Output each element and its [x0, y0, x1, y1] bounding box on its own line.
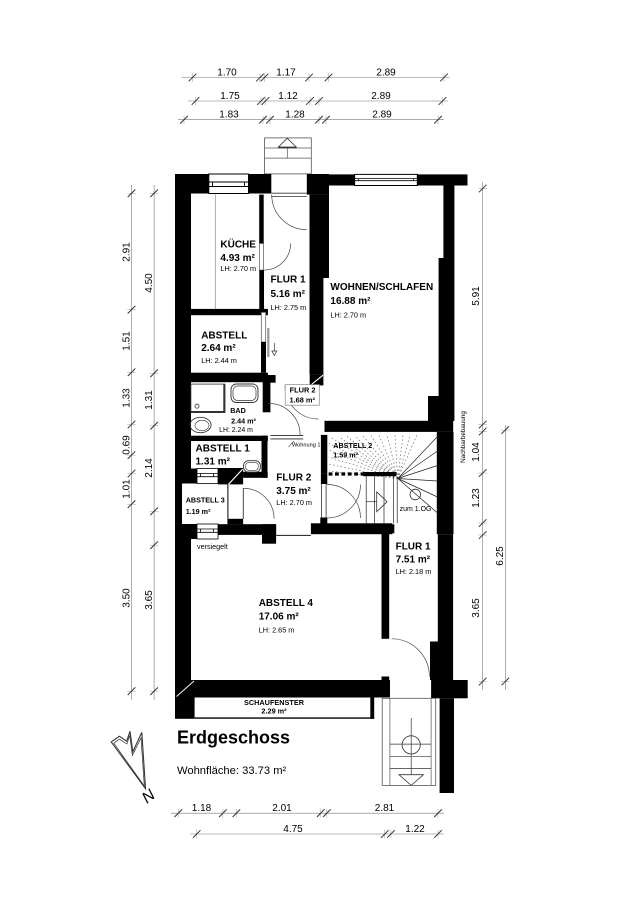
svg-text:5.16 m²: 5.16 m² [271, 289, 306, 300]
svg-text:3.50: 3.50 [122, 588, 133, 608]
svg-text:2.29 m²: 2.29 m² [261, 707, 287, 716]
svg-text:SCHAUFENSTER: SCHAUFENSTER [244, 698, 305, 707]
svg-text:1.33: 1.33 [122, 388, 133, 408]
svg-text:Wohnfläche: 33.73 m²: Wohnfläche: 33.73 m² [177, 765, 287, 777]
svg-text:1.28: 1.28 [285, 110, 305, 121]
svg-text:Erdgeschoss: Erdgeschoss [177, 728, 290, 748]
svg-text:4.93 m²: 4.93 m² [220, 253, 255, 264]
svg-text:ABSTELL 2: ABSTELL 2 [333, 441, 372, 450]
svg-text:6.25: 6.25 [495, 546, 506, 566]
svg-text:1.31: 1.31 [144, 390, 155, 410]
svg-text:FLUR 2: FLUR 2 [276, 472, 311, 483]
svg-text:zum 1.OG: zum 1.OG [400, 506, 432, 513]
svg-text:1.22: 1.22 [405, 824, 425, 835]
svg-text:2.44 m²: 2.44 m² [231, 417, 256, 426]
svg-text:WOHNEN/SCHLAFEN: WOHNEN/SCHLAFEN [330, 282, 433, 293]
svg-text:2.89: 2.89 [371, 91, 391, 102]
svg-text:2.14: 2.14 [144, 458, 155, 478]
svg-text:Wohnung 1: Wohnung 1 [292, 442, 321, 448]
svg-text:FLUR 1: FLUR 1 [271, 274, 306, 285]
svg-text:FLUR 1: FLUR 1 [396, 542, 431, 553]
svg-text:4.75: 4.75 [283, 824, 303, 835]
svg-text:3.75 m²: 3.75 m² [276, 486, 311, 497]
svg-text:17.06 m²: 17.06 m² [259, 612, 300, 623]
svg-text:2.64 m²: 2.64 m² [201, 343, 236, 354]
svg-text:2.81: 2.81 [375, 803, 395, 814]
svg-text:1.59 m²: 1.59 m² [333, 450, 358, 459]
svg-text:LH: 2.44 m: LH: 2.44 m [201, 356, 237, 365]
svg-text:2.91: 2.91 [122, 242, 133, 262]
svg-text:2.01: 2.01 [272, 803, 292, 814]
svg-text:ABSTELL: ABSTELL [201, 330, 247, 341]
svg-text:0.69: 0.69 [122, 435, 133, 455]
svg-text:1.31 m²: 1.31 m² [196, 457, 231, 468]
svg-text:LH: 2.70 m: LH: 2.70 m [276, 498, 312, 507]
svg-text:16.88 m²: 16.88 m² [330, 296, 371, 307]
svg-text:LH: 2.75 m: LH: 2.75 m [271, 303, 307, 312]
svg-text:1.75: 1.75 [220, 91, 240, 102]
svg-text:KÜCHE: KÜCHE [220, 237, 256, 250]
svg-text:1.04: 1.04 [471, 442, 482, 462]
svg-text:LH: 2.70 m: LH: 2.70 m [330, 311, 366, 320]
svg-text:ABSTELL 4: ABSTELL 4 [259, 598, 314, 609]
svg-text:ABSTELL 3: ABSTELL 3 [186, 495, 225, 504]
svg-text:1.19 m²: 1.19 m² [186, 507, 211, 516]
svg-text:LH: 2.18 m: LH: 2.18 m [396, 567, 432, 576]
svg-text:ABSTELL 1: ABSTELL 1 [196, 444, 251, 455]
svg-text:1.12: 1.12 [278, 91, 298, 102]
svg-text:LH: 2.24 m: LH: 2.24 m [219, 427, 253, 434]
svg-text:1.01: 1.01 [122, 479, 133, 499]
svg-text:2.89: 2.89 [376, 67, 396, 78]
svg-text:3.65: 3.65 [144, 590, 155, 610]
svg-text:Nachbarbebauung: Nachbarbebauung [460, 411, 467, 463]
svg-text:3.65: 3.65 [471, 598, 482, 618]
svg-text:1.68 m²: 1.68 m² [289, 395, 315, 404]
svg-text:1.70: 1.70 [217, 67, 237, 78]
svg-text:5.91: 5.91 [471, 286, 482, 306]
svg-text:4.50: 4.50 [144, 273, 155, 293]
svg-text:7.51 m²: 7.51 m² [396, 554, 431, 565]
svg-text:1.23: 1.23 [471, 488, 482, 508]
svg-text:versiegelt: versiegelt [197, 542, 228, 551]
svg-text:2.89: 2.89 [372, 110, 392, 121]
svg-text:FLUR 2: FLUR 2 [290, 386, 316, 395]
svg-text:1.51: 1.51 [122, 331, 133, 351]
svg-text:BAD: BAD [230, 406, 246, 415]
svg-text:LH: 2.70 m: LH: 2.70 m [220, 264, 256, 273]
svg-text:1.83: 1.83 [219, 110, 239, 121]
svg-text:LH: 2.65 m: LH: 2.65 m [259, 625, 295, 634]
svg-text:1.17: 1.17 [276, 67, 296, 78]
svg-text:1.18: 1.18 [192, 803, 212, 814]
